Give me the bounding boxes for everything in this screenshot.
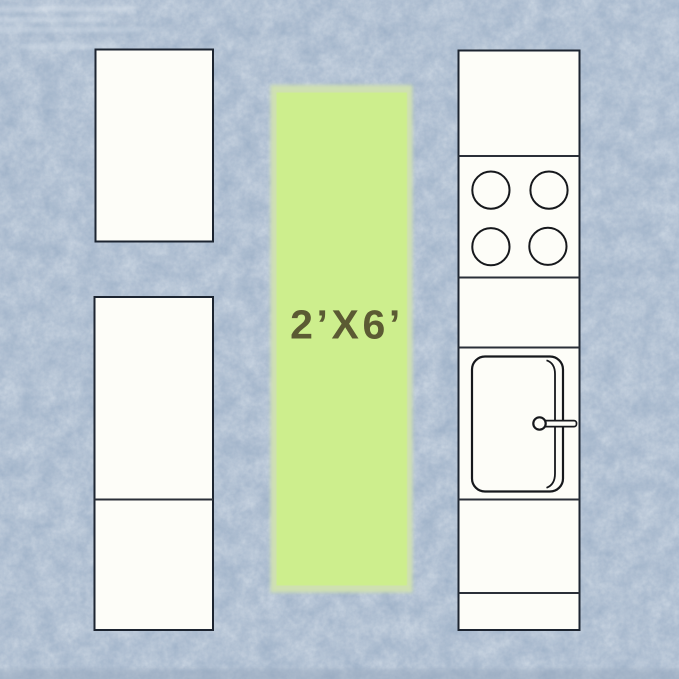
svg-text:2’X6’: 2’X6’ [290, 302, 404, 348]
